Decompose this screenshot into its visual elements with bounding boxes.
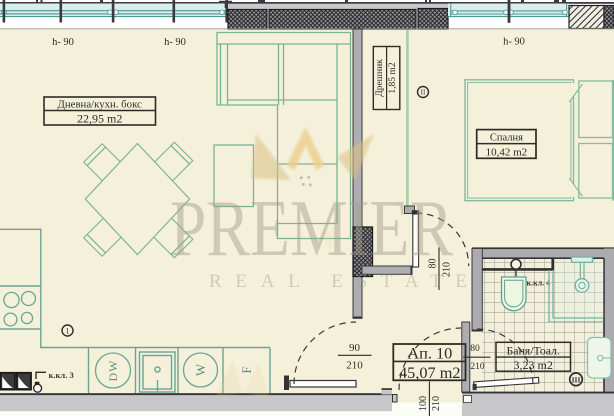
svg-text:100: 100 <box>418 396 429 411</box>
svg-text:III: III <box>572 375 581 384</box>
svg-text:h‑ 90: h‑ 90 <box>52 37 74 48</box>
svg-text:210: 210 <box>442 262 453 277</box>
svg-text:W: W <box>193 363 208 376</box>
svg-text:h‑ 90: h‑ 90 <box>164 37 186 48</box>
svg-text:F: F <box>239 366 254 373</box>
svg-text:90: 90 <box>349 342 361 354</box>
svg-text:3,23 m2: 3,23 m2 <box>514 358 553 372</box>
svg-text:Дневна/кухн. бокс: Дневна/кухн. бокс <box>58 99 143 111</box>
svg-text:Баня/Тоал.: Баня/Тоал. <box>506 344 559 358</box>
svg-text:PREMIER: PREMIER <box>170 185 454 273</box>
svg-text:Спалня: Спалня <box>490 133 523 144</box>
svg-text:DW: DW <box>106 360 120 382</box>
svg-text:210: 210 <box>346 360 363 372</box>
svg-text:h‑ 90: h‑ 90 <box>503 37 525 48</box>
svg-text:210: 210 <box>431 396 442 411</box>
svg-text:10,42 m2: 10,42 m2 <box>486 146 528 158</box>
svg-text:80: 80 <box>428 259 439 269</box>
svg-text:210: 210 <box>470 362 485 372</box>
svg-text:1: 1 <box>66 327 70 336</box>
svg-text:Дрешник: Дрешник <box>375 59 385 97</box>
svg-text:1,85 m2: 1,85 m2 <box>388 62 398 93</box>
svg-text:45,07 m2: 45,07 m2 <box>399 363 461 382</box>
svg-text:к.кл. 3: к.кл. 3 <box>49 370 74 380</box>
svg-text:22,95 m2: 22,95 m2 <box>77 112 122 126</box>
svg-text:80: 80 <box>470 344 480 354</box>
svg-text:к.кл. 4: к.кл. 4 <box>527 279 551 288</box>
svg-text:II: II <box>421 89 426 97</box>
svg-text:Ап. 10: Ап. 10 <box>407 344 452 363</box>
